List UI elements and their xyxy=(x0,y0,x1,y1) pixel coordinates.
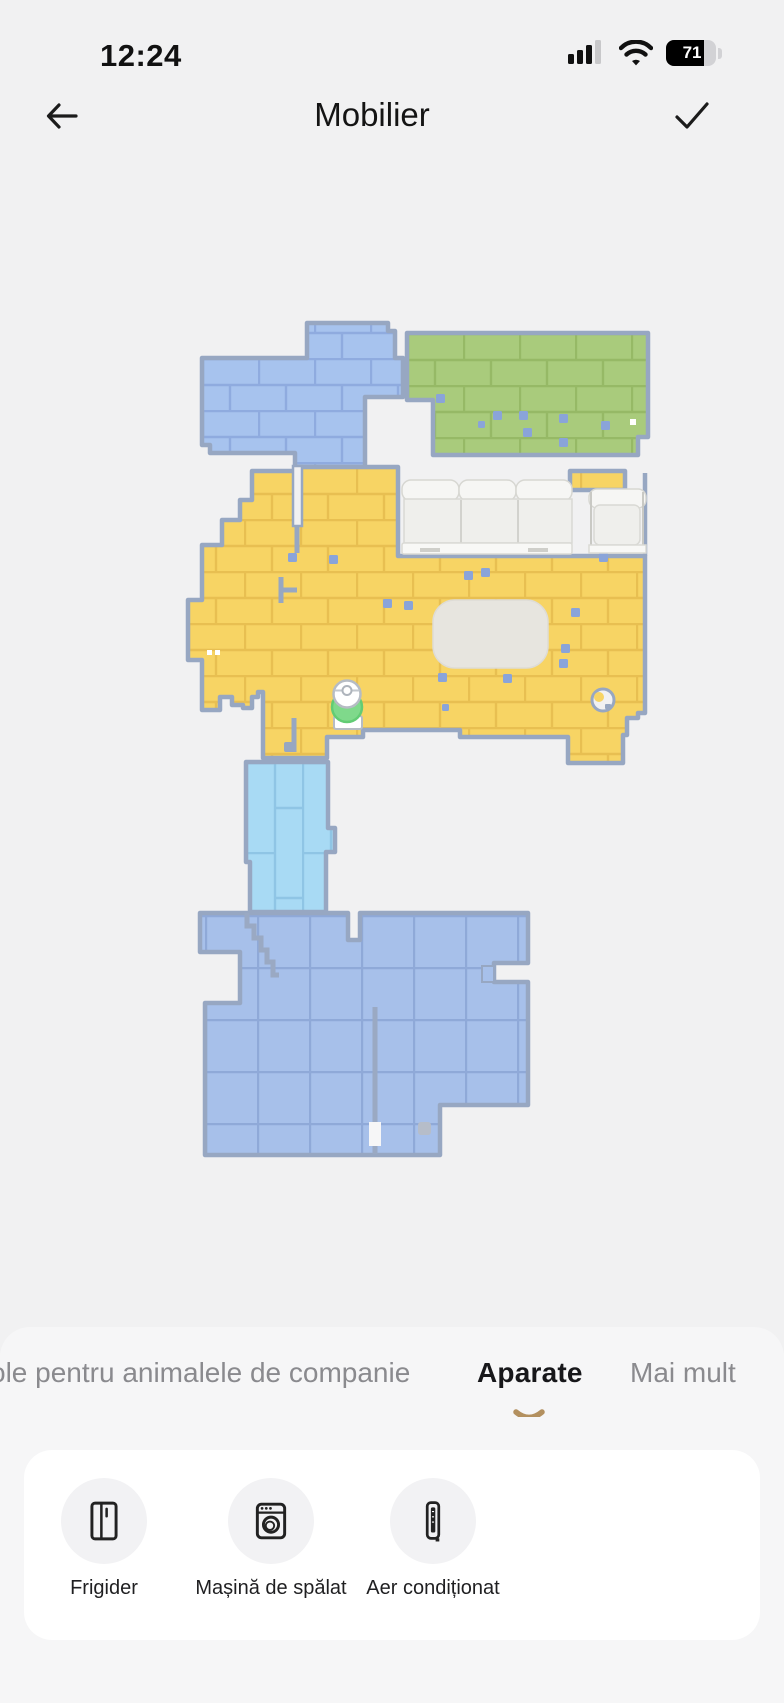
air-conditioner-icon xyxy=(412,1500,454,1542)
category-tabs[interactable]: ole pentru animalele de companie Aparate… xyxy=(0,1347,784,1417)
sofa[interactable] xyxy=(402,480,572,554)
appliance-item-air-conditioner[interactable]: Aer condiționat xyxy=(353,1478,513,1600)
room-bottom[interactable] xyxy=(200,913,528,1155)
washing-machine-icon xyxy=(250,1500,292,1542)
appliances-card: Frigider Mașină de spălat xyxy=(24,1450,760,1640)
appliance-item-washing-machine[interactable]: Mașină de spălat xyxy=(191,1478,351,1600)
bottom-sheet: ole pentru animalele de companie Aparate… xyxy=(0,1327,784,1704)
active-tab-indicator xyxy=(513,1409,545,1417)
appliance-label: Mașină de spălat xyxy=(191,1577,351,1600)
rug[interactable] xyxy=(433,600,548,668)
appliance-item-fridge[interactable]: Frigider xyxy=(24,1478,184,1600)
room-living-ledge xyxy=(570,471,625,490)
small-obstacle xyxy=(592,689,614,711)
tab-more[interactable]: Mai mult xyxy=(630,1357,736,1389)
fridge-icon xyxy=(83,1500,125,1542)
appliance-label: Frigider xyxy=(24,1577,184,1600)
appliance-label: Aer condiționat xyxy=(353,1577,513,1600)
room-corridor[interactable] xyxy=(246,762,335,912)
robot-vacuum-marker[interactable] xyxy=(332,681,362,730)
room-top-left[interactable] xyxy=(202,323,403,467)
tab-appliances[interactable]: Aparate xyxy=(477,1357,583,1389)
armchair[interactable] xyxy=(589,489,646,553)
tab-pet-supplies[interactable]: ole pentru animalele de companie xyxy=(0,1357,410,1389)
